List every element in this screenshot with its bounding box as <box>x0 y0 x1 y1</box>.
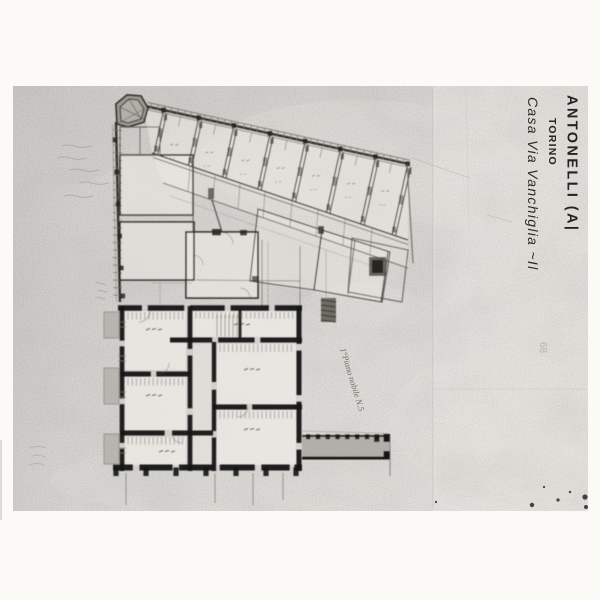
svg-text:ANTONELLI (A|: ANTONELLI (A| <box>564 95 580 232</box>
svg-text:Casa Via Vanchiglia ~Il: Casa Via Vanchiglia ~Il <box>525 97 541 271</box>
svg-text:TORINO: TORINO <box>546 118 558 166</box>
svg-text:68: 68 <box>537 342 548 354</box>
